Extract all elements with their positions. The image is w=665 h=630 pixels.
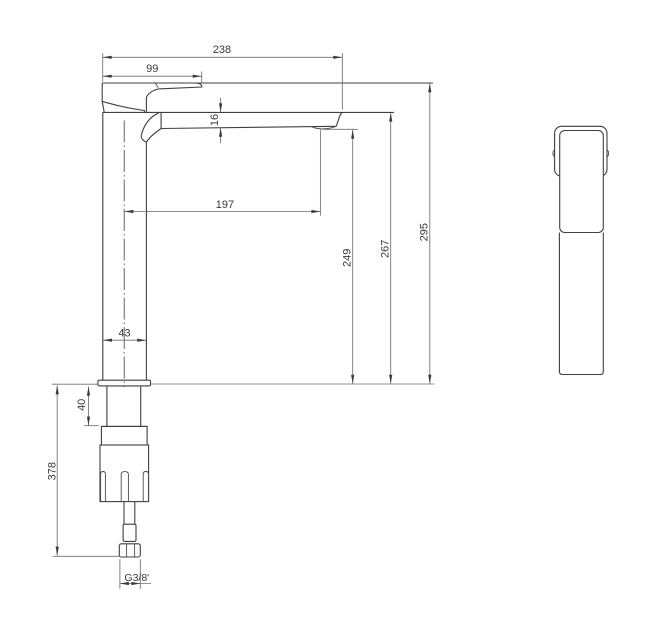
svg-text:43: 43	[118, 328, 130, 340]
svg-text:295: 295	[418, 223, 430, 241]
svg-text:249: 249	[341, 249, 353, 267]
svg-text:378: 378	[46, 462, 58, 480]
svg-text:238: 238	[213, 44, 231, 56]
svg-text:40: 40	[76, 399, 88, 411]
svg-text:197: 197	[216, 199, 234, 211]
svg-text:G3/8': G3/8'	[124, 572, 149, 584]
svg-text:16: 16	[209, 114, 221, 126]
svg-text:99: 99	[146, 63, 158, 75]
svg-text:267: 267	[379, 240, 391, 258]
